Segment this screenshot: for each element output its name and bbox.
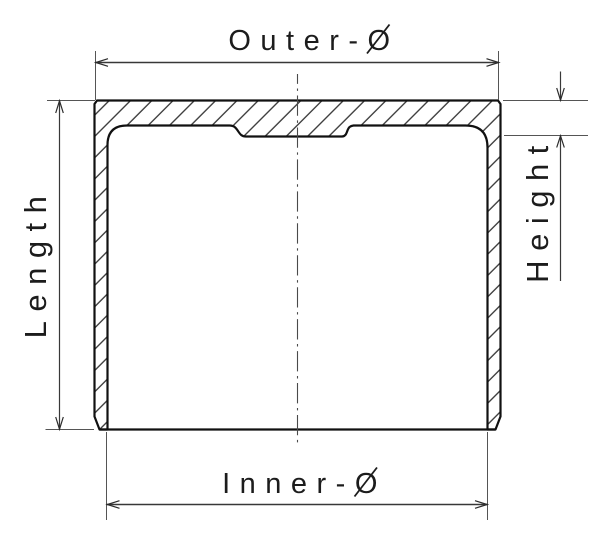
svg-text:Inner-O: Inner-O [222, 468, 387, 500]
svg-text:Height: Height [520, 136, 555, 283]
svg-text:Outer-O: Outer-O [228, 25, 399, 57]
svg-text:Length: Length [18, 187, 53, 339]
